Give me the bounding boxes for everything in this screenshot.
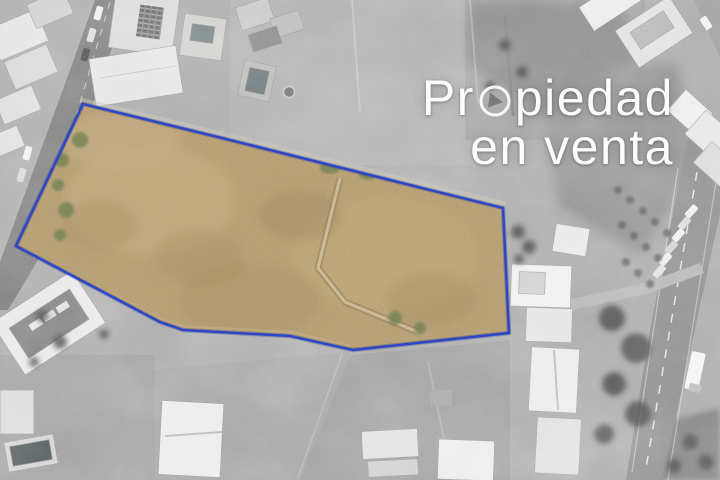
compass-play-icon — [477, 82, 513, 118]
caption-text-pre: Pr — [422, 70, 475, 126]
property-listing-photo: Pr piedad en venta — [0, 0, 720, 480]
sale-caption: Pr piedad en venta — [422, 74, 674, 172]
caption-line-2: en venta — [422, 123, 674, 172]
caption-text-post: piedad — [515, 70, 674, 126]
caption-line-1: Pr piedad — [422, 74, 674, 123]
